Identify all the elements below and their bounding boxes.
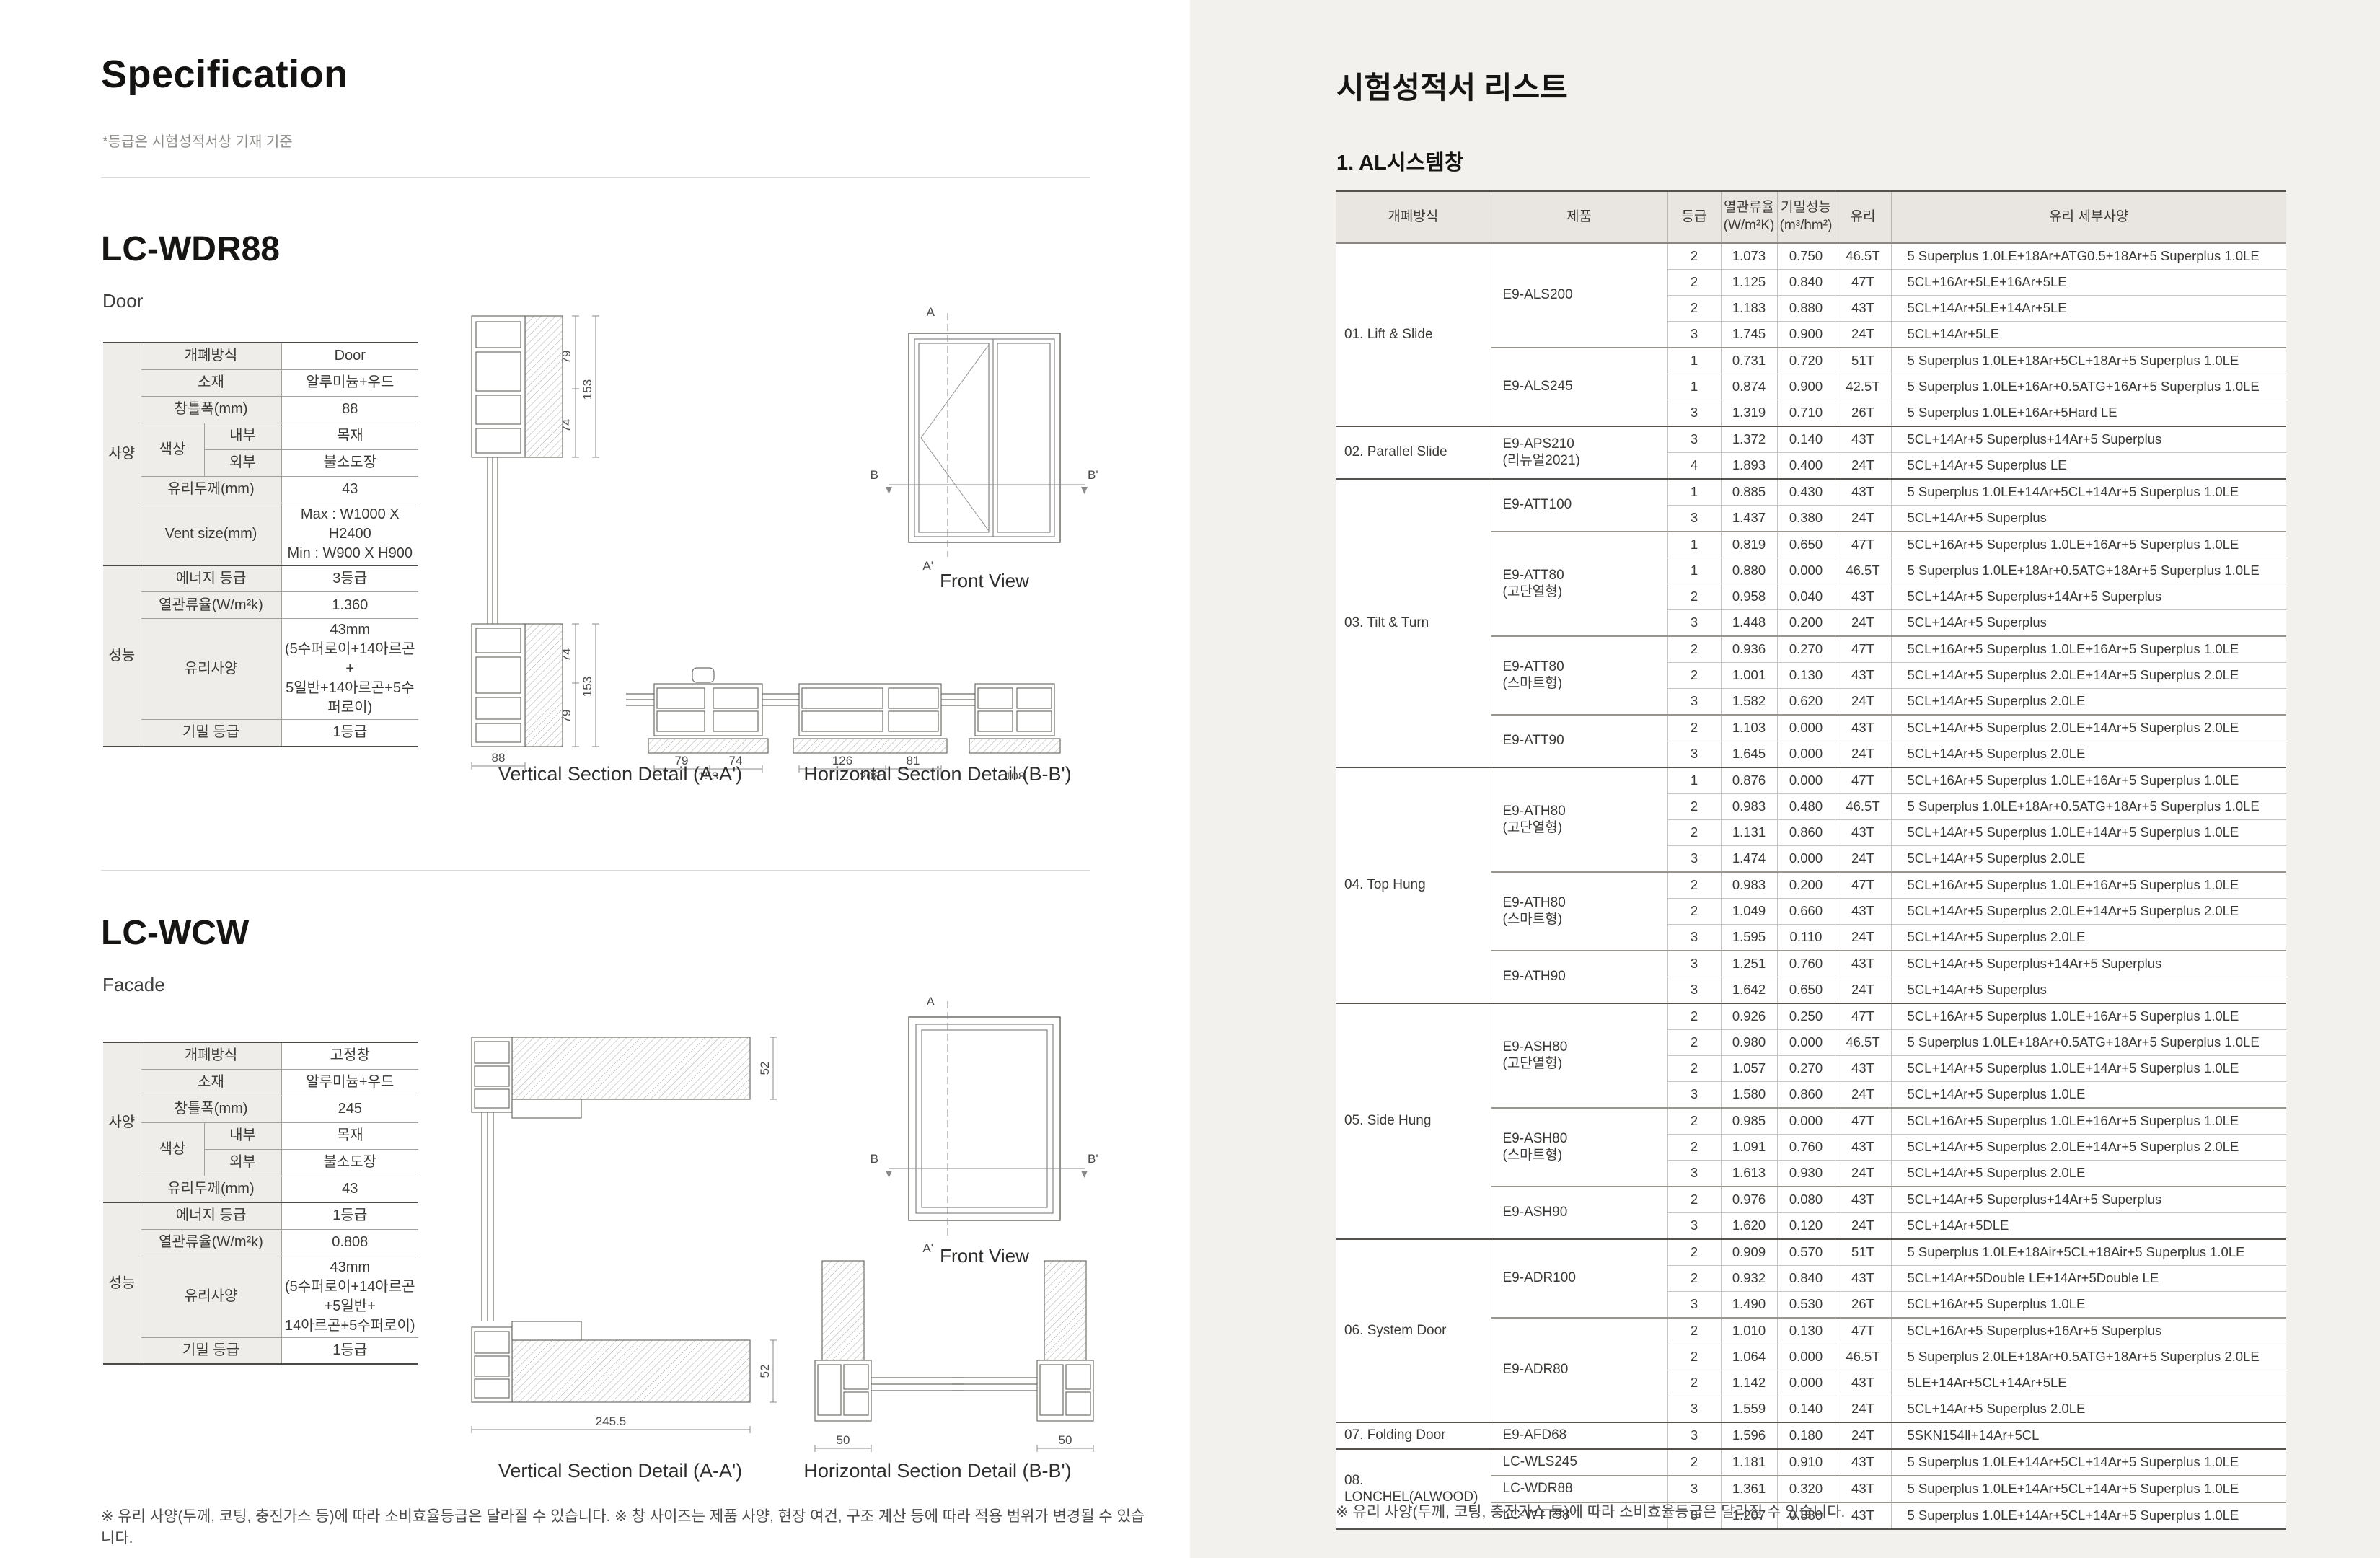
wdr88-section-drawing: 79 74 153 74 79 153 88 A A' B B' [447, 303, 1103, 779]
glass-detail-cell: 5CL+14Ar+5 Superplus 2.0LE [1891, 1161, 2286, 1187]
airtight-cell: 0.760 [1777, 951, 1835, 977]
right-footnote: ※ 유리 사양(두께, 코팅, 충진가스 등)에 따라 소비효율등급은 달라질 … [1336, 1500, 2345, 1522]
grade-cell: 3 [1667, 1082, 1721, 1109]
glass-cell: 51T [1835, 1239, 1891, 1266]
vertical-section-caption: Vertical Section Detail (A-A') [462, 763, 779, 785]
airtight-cell: 0.930 [1777, 1161, 1835, 1187]
grade-cell: 2 [1667, 584, 1721, 610]
horizontal-section-caption: Horizontal Section Detail (B-B') [779, 763, 1096, 785]
u-value-cell: 1.125 [1721, 270, 1777, 296]
glass-detail-cell: 5CL+16Ar+5 Superplus+16Ar+5 Superplus [1891, 1318, 2286, 1344]
dimension-label: 52 [758, 1062, 772, 1075]
grade-cell: 3 [1667, 610, 1721, 637]
grade-cell: 3 [1667, 1213, 1721, 1240]
glass-cell: 47T [1835, 767, 1891, 794]
model-type-wcw: Facade [102, 974, 165, 996]
glass-cell: 24T [1835, 1082, 1891, 1109]
glass-cell: 24T [1835, 689, 1891, 716]
table-row: 08. LONCHEL(ALWOOD)LC-WLS24521.1810.9104… [1336, 1449, 2286, 1476]
grade-cell: 1 [1667, 558, 1721, 584]
spec-row: Vent size(mm)Max : W1000 X H2400Min : W9… [103, 503, 418, 565]
airtight-cell: 0.270 [1777, 636, 1835, 663]
grade-cell: 2 [1667, 1344, 1721, 1370]
glass-cell: 24T [1835, 506, 1891, 532]
u-value-cell: 1.559 [1721, 1396, 1777, 1423]
airtight-cell: 0.000 [1777, 741, 1835, 768]
u-value-cell: 0.976 [1721, 1187, 1777, 1213]
grade-cell: 2 [1667, 820, 1721, 846]
glass-cell: 43T [1835, 296, 1891, 322]
product-cell: E9-AFD68 [1491, 1422, 1667, 1449]
u-value-cell: 0.985 [1721, 1108, 1777, 1135]
grade-cell: 3 [1667, 1396, 1721, 1423]
product-cell: E9-ATT80(스마트형) [1491, 636, 1667, 715]
airtight-cell: 0.140 [1777, 426, 1835, 453]
glass-cell: 47T [1835, 1108, 1891, 1135]
spec-row: 기밀 등급1등급 [103, 1337, 418, 1364]
u-value-cell: 1.181 [1721, 1449, 1777, 1476]
airtight-cell: 0.320 [1777, 1476, 1835, 1502]
dimension-label: 153 [581, 379, 594, 400]
grade-cell: 2 [1667, 1318, 1721, 1344]
product-cell: LC-WLS245 [1491, 1449, 1667, 1476]
airtight-cell: 0.910 [1777, 1449, 1835, 1476]
airtight-cell: 0.250 [1777, 1003, 1835, 1030]
glass-cell: 24T [1835, 977, 1891, 1004]
glass-detail-cell: 5CL+14Ar+5 Superplus [1891, 506, 2286, 532]
opening-type-cell: 04. Top Hung [1336, 767, 1491, 1003]
spec-row: 유리두께(mm)43 [103, 1176, 418, 1202]
glass-detail-cell: 5CL+16Ar+5 Superplus 1.0LE+16Ar+5 Superp… [1891, 532, 2286, 558]
grade-cell: 2 [1667, 1135, 1721, 1161]
airtight-cell: 0.380 [1777, 506, 1835, 532]
glass-cell: 24T [1835, 1213, 1891, 1240]
glass-detail-cell: 5CL+14Ar+5 Superplus [1891, 610, 2286, 637]
table-row: 04. Top HungE9-ATH80(고단열형)10.8760.00047T… [1336, 767, 2286, 794]
airtight-cell: 0.040 [1777, 584, 1835, 610]
airtight-cell: 0.400 [1777, 453, 1835, 480]
axis-label-b-prime: B' [1088, 1152, 1098, 1166]
glass-detail-cell: 5CL+14Ar+5 Superplus 2.0LE [1891, 846, 2286, 873]
grade-cell: 2 [1667, 1370, 1721, 1396]
grade-cell: 2 [1667, 636, 1721, 663]
airtight-cell: 0.110 [1777, 925, 1835, 951]
glass-cell: 42.5T [1835, 374, 1891, 400]
spec-label: 유리두께(mm) [141, 1176, 281, 1202]
glass-detail-cell: 5 Superplus 1.0LE+14Ar+5CL+14Ar+5 Superp… [1891, 479, 2286, 506]
product-cell: E9-ASH80(스마트형) [1491, 1108, 1667, 1187]
col-header: 개폐방식 [1336, 191, 1491, 243]
grade-cell: 2 [1667, 1056, 1721, 1082]
u-value-cell: 1.142 [1721, 1370, 1777, 1396]
grade-cell: 3 [1667, 1161, 1721, 1187]
grade-cell: 2 [1667, 899, 1721, 925]
glass-cell: 47T [1835, 270, 1891, 296]
glass-cell: 43T [1835, 479, 1891, 506]
spec-row: 성능에너지 등급3등급 [103, 565, 418, 592]
grade-cell: 3 [1667, 977, 1721, 1004]
product-cell: E9-APS210(리뉴얼2021) [1491, 426, 1667, 479]
u-value-cell: 1.103 [1721, 715, 1777, 741]
airtight-cell: 0.710 [1777, 400, 1835, 427]
airtight-cell: 0.000 [1777, 1370, 1835, 1396]
report-list-title: 시험성적서 리스트 [1336, 63, 1568, 107]
spec-label: 소재 [141, 369, 281, 396]
spec-label: 색상 [141, 1122, 204, 1176]
glass-cell: 46.5T [1835, 1344, 1891, 1370]
spec-label: 기밀 등급 [141, 1337, 281, 1364]
glass-detail-cell: 5CL+16Ar+5 Superplus 1.0LE+16Ar+5 Superp… [1891, 636, 2286, 663]
spec-value: 목재 [281, 1122, 418, 1149]
grade-cell: 3 [1667, 689, 1721, 716]
u-value-cell: 0.926 [1721, 1003, 1777, 1030]
table-row: 05. Side HungE9-ASH80(고단열형)20.9260.25047… [1336, 1003, 2286, 1030]
glass-cell: 24T [1835, 846, 1891, 873]
glass-cell: 43T [1835, 1056, 1891, 1082]
grade-cell: 2 [1667, 663, 1721, 689]
airtight-cell: 0.000 [1777, 767, 1835, 794]
spec-value: 불소도장 [281, 1149, 418, 1176]
airtight-cell: 0.570 [1777, 1239, 1835, 1266]
glass-detail-cell: 5CL+16Ar+5LE+16Ar+5LE [1891, 270, 2286, 296]
airtight-cell: 0.480 [1777, 794, 1835, 820]
glass-cell: 43T [1835, 1266, 1891, 1292]
u-value-cell: 1.251 [1721, 951, 1777, 977]
spec-value: 0.808 [281, 1229, 418, 1256]
vertical-section-caption: Vertical Section Detail (A-A') [462, 1460, 779, 1482]
airtight-cell: 0.860 [1777, 1082, 1835, 1109]
airtight-cell: 0.130 [1777, 1318, 1835, 1344]
spec-group-label: 사양 [103, 1042, 141, 1202]
spec-value: 3등급 [281, 565, 418, 592]
spec-row: 유리사양43mm(5수퍼로이+14아르곤+5일반+14아르곤+5수퍼로이) [103, 1256, 418, 1337]
airtight-cell: 0.760 [1777, 1135, 1835, 1161]
u-value-cell: 0.983 [1721, 872, 1777, 899]
spec-label: 개폐방식 [141, 1042, 281, 1069]
grade-cell: 2 [1667, 715, 1721, 741]
glass-detail-cell: 5 Superplus 1.0LE+14Ar+5CL+14Ar+5 Superp… [1891, 1476, 2286, 1502]
product-cell: E9-ASH90 [1491, 1187, 1667, 1239]
airtight-cell: 0.880 [1777, 296, 1835, 322]
grade-cell: 1 [1667, 767, 1721, 794]
glass-cell: 43T [1835, 1135, 1891, 1161]
spec-value: 43 [281, 1176, 418, 1202]
airtight-cell: 0.650 [1777, 977, 1835, 1004]
u-value-cell: 1.642 [1721, 977, 1777, 1004]
catalog-page: Specification *등급은 시험성적서상 기재 기준 LC-WDR88… [0, 0, 2380, 1558]
glass-cell: 47T [1835, 872, 1891, 899]
page-title: Specification [101, 52, 348, 97]
grade-cell: 2 [1667, 1239, 1721, 1266]
grade-cell: 2 [1667, 1266, 1721, 1292]
axis-label-b: B [871, 1152, 878, 1166]
opening-type-cell: 02. Parallel Slide [1336, 426, 1491, 479]
glass-detail-cell: 5CL+14Ar+5 Superplus+14Ar+5 Superplus [1891, 951, 2286, 977]
spec-value: 43 [281, 476, 418, 503]
u-value-cell: 1.361 [1721, 1476, 1777, 1502]
spec-label: 유리사양 [141, 619, 281, 720]
opening-type-cell: 06. System Door [1336, 1239, 1491, 1422]
front-view-caption: Front View [907, 1245, 1062, 1267]
table-row: 03. Tilt & TurnE9-ATT10010.8850.43043T5 … [1336, 479, 2286, 506]
u-value-cell: 0.819 [1721, 532, 1777, 558]
product-cell: E9-ATH80(스마트형) [1491, 872, 1667, 951]
table-row: 07. Folding DoorE9-AFD6831.5960.18024T5S… [1336, 1422, 2286, 1449]
spec-label: 에너지 등급 [141, 565, 281, 592]
grade-cell: 3 [1667, 846, 1721, 873]
spec-row: 소재알루미늄+우드 [103, 369, 418, 396]
axis-label-a: A [927, 995, 935, 1008]
spec-group-label: 사양 [103, 343, 141, 565]
glass-detail-cell: 5CL+14Ar+5 Superplus+14Ar+5 Superplus [1891, 584, 2286, 610]
grade-cell: 3 [1667, 322, 1721, 348]
u-value-cell: 1.064 [1721, 1344, 1777, 1370]
grade-cell: 2 [1667, 1187, 1721, 1213]
airtight-cell: 0.650 [1777, 532, 1835, 558]
grade-cell: 3 [1667, 1292, 1721, 1319]
spec-row: 성능에너지 등급1등급 [103, 1202, 418, 1229]
glass-cell: 24T [1835, 1161, 1891, 1187]
spec-row: 열관류율(W/m²k)0.808 [103, 1229, 418, 1256]
spec-row: 창틀폭(mm)245 [103, 1096, 418, 1122]
airtight-cell: 0.080 [1777, 1187, 1835, 1213]
airtight-cell: 0.000 [1777, 715, 1835, 741]
spec-value: 1등급 [281, 1337, 418, 1364]
glass-cell: 43T [1835, 820, 1891, 846]
front-view-caption: Front View [907, 570, 1062, 592]
airtight-cell: 0.000 [1777, 846, 1835, 873]
product-cell: E9-ATH90 [1491, 951, 1667, 1003]
glass-cell: 24T [1835, 453, 1891, 480]
spec-label: 열관류율(W/m²k) [141, 592, 281, 619]
al-system-window-section: 1. AL시스템창 [1336, 146, 1464, 176]
u-value-cell: 1.183 [1721, 296, 1777, 322]
spec-row: 열관류율(W/m²k)1.360 [103, 592, 418, 619]
spec-row: 유리두께(mm)43 [103, 476, 418, 503]
glass-detail-cell: 5CL+14Ar+5 Superplus 2.0LE [1891, 1396, 2286, 1423]
glass-cell: 47T [1835, 532, 1891, 558]
dimension-label: 52 [758, 1365, 772, 1378]
model-type-wdr88: Door [102, 290, 143, 312]
airtight-cell: 0.200 [1777, 872, 1835, 899]
glass-detail-cell: 5 Superplus 1.0LE+16Ar+0.5ATG+16Ar+5 Sup… [1891, 374, 2286, 400]
airtight-cell: 0.620 [1777, 689, 1835, 716]
product-cell: E9-ATH80(고단열형) [1491, 767, 1667, 872]
glass-cell: 43T [1835, 1476, 1891, 1502]
glass-detail-cell: 5 Superplus 1.0LE+18Air+5CL+18Air+5 Supe… [1891, 1239, 2286, 1266]
glass-detail-cell: 5CL+14Ar+5LE [1891, 322, 2286, 348]
product-cell: E9-ATT80(고단열형) [1491, 532, 1667, 636]
airtight-cell: 0.530 [1777, 1292, 1835, 1319]
u-value-cell: 1.490 [1721, 1292, 1777, 1319]
table-row: 01. Lift & SlideE9-ALS20021.0730.75046.5… [1336, 243, 2286, 270]
glass-cell: 24T [1835, 610, 1891, 637]
dimension-label: 50 [1059, 1433, 1072, 1447]
glass-cell: 24T [1835, 741, 1891, 768]
glass-cell: 24T [1835, 925, 1891, 951]
spec-value: 88 [281, 396, 418, 423]
header-row: 개폐방식제품등급열관류율 (W/m²K)기밀성능 (m³/hm²)유리유리 세부… [1336, 191, 2286, 243]
grade-cell: 2 [1667, 1030, 1721, 1056]
glass-cell: 46.5T [1835, 243, 1891, 270]
divider [101, 870, 1090, 871]
glass-cell: 46.5T [1835, 794, 1891, 820]
grade-cell: 3 [1667, 426, 1721, 453]
airtight-cell: 0.840 [1777, 1266, 1835, 1292]
airtight-cell: 0.660 [1777, 899, 1835, 925]
spec-group-label: 성능 [103, 1202, 141, 1364]
glass-detail-cell: 5CL+14Ar+5 Superplus 2.0LE+14Ar+5 Superp… [1891, 663, 2286, 689]
glass-detail-cell: 5 Superplus 2.0LE+18Ar+0.5ATG+18Ar+5 Sup… [1891, 1344, 2286, 1370]
glass-detail-cell: 5CL+16Ar+5 Superplus 1.0LE+16Ar+5 Superp… [1891, 872, 2286, 899]
axis-label-b-prime: B' [1088, 468, 1098, 482]
spec-value: Max : W1000 X H2400Min : W900 X H900 [281, 503, 418, 565]
spec-value: 불소도장 [281, 449, 418, 476]
spec-value: Door [281, 343, 418, 369]
spec-row: 색상내부목재 [103, 1122, 418, 1149]
u-value-cell: 1.073 [1721, 243, 1777, 270]
u-value-cell: 1.582 [1721, 689, 1777, 716]
spec-label: 개폐방식 [141, 343, 281, 369]
airtight-cell: 0.750 [1777, 243, 1835, 270]
u-value-cell: 1.448 [1721, 610, 1777, 637]
glass-cell: 47T [1835, 1318, 1891, 1344]
grade-cell: 3 [1667, 951, 1721, 977]
u-value-cell: 0.731 [1721, 348, 1777, 374]
u-value-cell: 1.372 [1721, 426, 1777, 453]
spec-value: 1등급 [281, 1202, 418, 1229]
spec-label: 유리사양 [141, 1256, 281, 1337]
spec-value: 245 [281, 1096, 418, 1122]
spec-label: 유리두께(mm) [141, 476, 281, 503]
spec-label: 색상 [141, 423, 204, 476]
spec-table-wdr88: 사양개폐방식Door소재알루미늄+우드창틀폭(mm)88색상내부목재외부불소도장… [103, 342, 418, 747]
spec-value: 목재 [281, 423, 418, 449]
spec-table: 사양개폐방식고정창소재알루미늄+우드창틀폭(mm)245색상내부목재외부불소도장… [103, 1042, 418, 1365]
glass-cell: 46.5T [1835, 558, 1891, 584]
spec-value: 1등급 [281, 720, 418, 747]
test-report-table-container: 개폐방식제품등급열관류율 (W/m²K)기밀성능 (m³/hm²)유리유리 세부… [1336, 190, 2286, 1530]
dimension-label: 79 [560, 710, 573, 723]
glass-detail-cell: 5 Superplus 1.0LE+14Ar+5CL+14Ar+5 Superp… [1891, 1449, 2286, 1476]
glass-detail-cell: 5LE+14Ar+5CL+14Ar+5LE [1891, 1370, 2286, 1396]
u-value-cell: 1.474 [1721, 846, 1777, 873]
airtight-cell: 0.270 [1777, 1056, 1835, 1082]
u-value-cell: 0.885 [1721, 479, 1777, 506]
grade-cell: 3 [1667, 400, 1721, 427]
glass-cell: 43T [1835, 899, 1891, 925]
u-value-cell: 0.880 [1721, 558, 1777, 584]
col-header: 유리 [1835, 191, 1891, 243]
glass-detail-cell: 5CL+14Ar+5 Superplus 2.0LE [1891, 925, 2286, 951]
u-value-cell: 1.319 [1721, 400, 1777, 427]
grade-cell: 3 [1667, 506, 1721, 532]
glass-detail-cell: 5 Superplus 1.0LE+18Ar+ATG0.5+18Ar+5 Sup… [1891, 243, 2286, 270]
product-cell: E9-ADR100 [1491, 1239, 1667, 1318]
spec-row: 기밀 등급1등급 [103, 720, 418, 747]
airtight-cell: 0.000 [1777, 1030, 1835, 1056]
glass-detail-cell: 5CL+16Ar+5 Superplus 1.0LE+16Ar+5 Superp… [1891, 1108, 2286, 1135]
spec-sublabel: 외부 [204, 1149, 281, 1176]
glass-detail-cell: 5CL+14Ar+5 Superplus 1.0LE [1891, 1082, 2286, 1109]
grade-cell: 1 [1667, 374, 1721, 400]
u-value-cell: 1.437 [1721, 506, 1777, 532]
spec-table-wcw: 사양개폐방식고정창소재알루미늄+우드창틀폭(mm)245색상내부목재외부불소도장… [103, 1042, 418, 1365]
airtight-cell: 0.900 [1777, 374, 1835, 400]
spec-row: 유리사양43mm(5수퍼로이+14아르곤+5일반+14아르곤+5수퍼로이) [103, 619, 418, 720]
glass-cell: 26T [1835, 400, 1891, 427]
spec-sublabel: 내부 [204, 423, 281, 449]
airtight-cell: 0.840 [1777, 270, 1835, 296]
u-value-cell: 1.620 [1721, 1213, 1777, 1240]
airtight-cell: 0.720 [1777, 348, 1835, 374]
spec-row: 창틀폭(mm)88 [103, 396, 418, 423]
left-footnote: ※ 유리 사양(두께, 코팅, 충진가스 등)에 따라 소비효율등급은 달라질 … [101, 1505, 1154, 1548]
spec-value: 고정창 [281, 1042, 418, 1069]
glass-cell: 24T [1835, 1422, 1891, 1449]
dimension-label: 245.5 [596, 1414, 627, 1428]
grade-cell: 2 [1667, 872, 1721, 899]
col-header: 기밀성능 (m³/hm²) [1777, 191, 1835, 243]
grade-cell: 2 [1667, 243, 1721, 270]
grade-cell: 2 [1667, 1003, 1721, 1030]
glass-detail-cell: 5CL+14Ar+5 Superplus+14Ar+5 Superplus [1891, 1187, 2286, 1213]
u-value-cell: 1.595 [1721, 925, 1777, 951]
airtight-cell: 0.140 [1777, 1396, 1835, 1423]
glass-detail-cell: 5CL+14Ar+5 Superplus 2.0LE+14Ar+5 Superp… [1891, 715, 2286, 741]
glass-cell: 43T [1835, 1187, 1891, 1213]
glass-detail-cell: 5CL+16Ar+5 Superplus 1.0LE [1891, 1292, 2286, 1319]
spec-row: 사양개폐방식Door [103, 343, 418, 369]
u-value-cell: 0.876 [1721, 767, 1777, 794]
glass-detail-cell: 5CL+16Ar+5 Superplus 1.0LE+16Ar+5 Superp… [1891, 1003, 2286, 1030]
u-value-cell: 1.131 [1721, 820, 1777, 846]
u-value-cell: 1.057 [1721, 1056, 1777, 1082]
spec-group-label: 성능 [103, 565, 141, 747]
wcw-section-drawing: 52 52 245.5 A A' B B' [447, 995, 1103, 1471]
glass-cell: 24T [1835, 1396, 1891, 1423]
col-header: 열관류율 (W/m²K) [1721, 191, 1777, 243]
glass-detail-cell: 5CL+14Ar+5 Superplus+14Ar+5 Superplus [1891, 426, 2286, 453]
col-header: 등급 [1667, 191, 1721, 243]
grade-cell: 3 [1667, 741, 1721, 768]
glass-cell: 43T [1835, 1370, 1891, 1396]
spec-value: 알루미늄+우드 [281, 369, 418, 396]
opening-type-cell: 05. Side Hung [1336, 1003, 1491, 1239]
model-title-wcw: LC-WCW [101, 913, 249, 953]
spec-label: Vent size(mm) [141, 503, 281, 565]
dimension-label: 153 [581, 677, 594, 697]
u-value-cell: 0.936 [1721, 636, 1777, 663]
glass-detail-cell: 5CL+14Ar+5LE+14Ar+5LE [1891, 296, 2286, 322]
u-value-cell: 1.091 [1721, 1135, 1777, 1161]
axis-label-b: B [871, 468, 878, 482]
glass-detail-cell: 5 Superplus 1.0LE+18Ar+0.5ATG+18Ar+5 Sup… [1891, 558, 2286, 584]
glass-detail-cell: 5 Superplus 1.0LE+18Ar+0.5ATG+18Ar+5 Sup… [1891, 1030, 2286, 1056]
test-report-table: 개폐방식제품등급열관류율 (W/m²K)기밀성능 (m³/hm²)유리유리 세부… [1336, 190, 2286, 1530]
spec-value: 알루미늄+우드 [281, 1069, 418, 1096]
spec-value: 43mm(5수퍼로이+14아르곤+5일반+14아르곤+5수퍼로이) [281, 619, 418, 720]
model-title-wdr88: LC-WDR88 [101, 229, 280, 269]
grade-cell: 2 [1667, 270, 1721, 296]
u-value-cell: 1.893 [1721, 453, 1777, 480]
glass-detail-cell: 5CL+14Ar+5 Superplus LE [1891, 453, 2286, 480]
glass-detail-cell: 5CL+14Ar+5Double LE+14Ar+5Double LE [1891, 1266, 2286, 1292]
u-value-cell: 0.909 [1721, 1239, 1777, 1266]
grade-cell: 3 [1667, 1422, 1721, 1449]
airtight-cell: 0.120 [1777, 1213, 1835, 1240]
product-cell: E9-ADR80 [1491, 1318, 1667, 1422]
